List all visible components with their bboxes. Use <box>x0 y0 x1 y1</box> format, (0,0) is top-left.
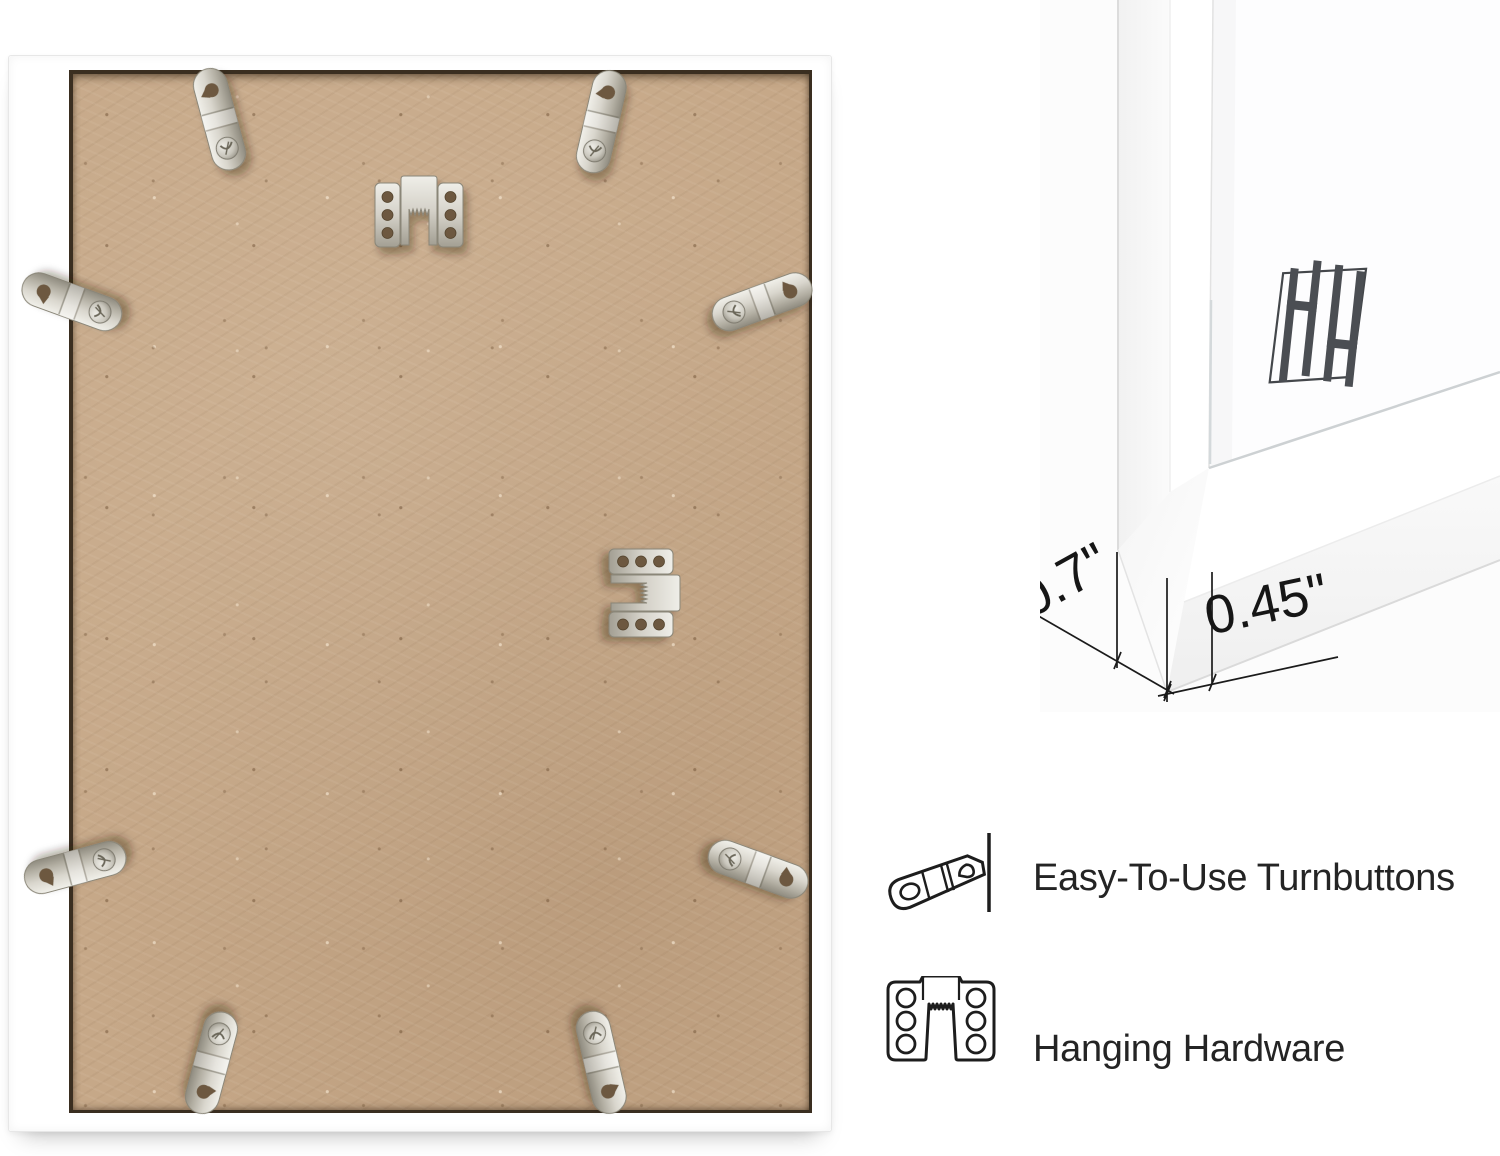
turnbutton <box>190 65 250 174</box>
frame-hardware <box>9 56 831 1131</box>
frame-corner-closeup: 0.7" 0.45" <box>1040 0 1500 712</box>
glass-edge-line <box>1210 300 1211 464</box>
frame-left-side <box>1118 0 1170 550</box>
turnbutton <box>21 838 130 898</box>
product-image: 0.7" 0.45" Easy-To-Use Turnbuttons Hangi… <box>0 0 1500 1156</box>
sawtooth-hanger-icon <box>886 976 996 1064</box>
sawtooth-hanger <box>609 549 680 637</box>
frame-back-photo <box>8 55 832 1132</box>
turnbutton <box>707 268 816 336</box>
turnbutton <box>573 67 630 176</box>
turnbutton-icon <box>886 830 996 934</box>
sawtooth-hanger <box>375 176 463 247</box>
feature-label-turnbuttons: Easy-To-Use Turnbuttons <box>1033 857 1455 900</box>
turnbutton <box>573 1008 630 1117</box>
frame-left-face <box>1170 0 1213 492</box>
turnbutton <box>703 835 812 903</box>
feature-label-hanging-hardware: Hanging Hardware <box>1033 1028 1345 1071</box>
turnbutton <box>17 268 126 336</box>
turnbutton <box>182 1008 242 1117</box>
